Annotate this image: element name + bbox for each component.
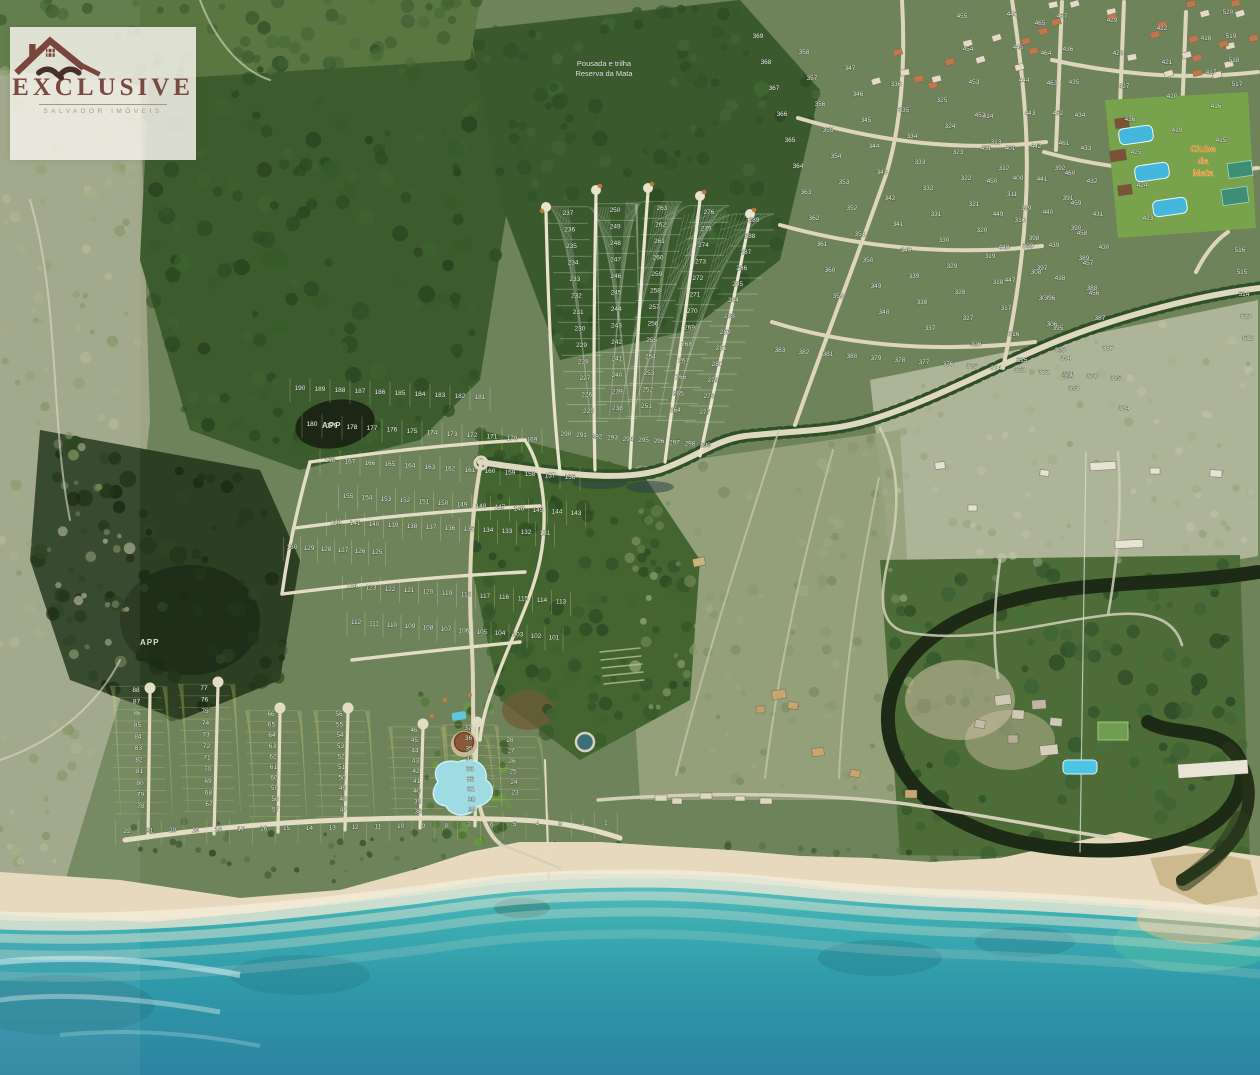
lot-number-label: 294	[623, 436, 634, 443]
lot-number-label: 17	[237, 826, 245, 833]
lot-number-label: 316	[1009, 331, 1020, 338]
tree-blob	[267, 830, 274, 837]
tree-blob	[730, 645, 740, 655]
lot-number-label: 360	[825, 267, 836, 274]
tree-blob	[579, 556, 592, 569]
tree-blob	[954, 576, 960, 582]
tree-blob	[819, 549, 828, 558]
brand-subtitle: SALVADOR IMÓVEIS	[43, 108, 162, 115]
lot-number-label: 9	[422, 823, 426, 830]
tree-blob	[871, 530, 878, 537]
tree-blob	[549, 645, 557, 653]
clube-da-mata	[1105, 92, 1256, 238]
tree-blob	[392, 278, 402, 288]
tree-blob	[124, 311, 129, 316]
lot-number-label: 20	[169, 827, 177, 834]
tree-blob	[925, 406, 931, 412]
lot-number-label: 518	[1229, 57, 1240, 64]
tree-blob	[970, 523, 975, 528]
tree-blob	[1246, 362, 1251, 367]
tree-blob	[360, 840, 367, 847]
lot-number-label: 334	[907, 133, 918, 140]
tree-blob	[882, 489, 889, 496]
tree-blob	[921, 384, 925, 388]
tree-blob	[588, 85, 604, 101]
tree-blob	[840, 552, 847, 559]
tree-blob	[1168, 357, 1177, 366]
tree-blob	[1065, 773, 1082, 790]
tree-blob	[111, 387, 118, 394]
tree-blob	[1027, 406, 1036, 415]
tree-blob	[165, 336, 181, 352]
tree-blob	[831, 533, 839, 541]
lot-number-label: 102	[531, 633, 542, 640]
tree-blob	[45, 5, 59, 19]
tree-blob	[272, 378, 279, 385]
tree-blob	[648, 134, 659, 145]
tree-blob	[226, 177, 241, 192]
tree-blob	[415, 416, 421, 422]
tree-blob	[198, 342, 210, 354]
tree-blob	[1199, 699, 1212, 712]
building	[905, 790, 917, 798]
lot-number-label: 13	[329, 824, 337, 831]
tree-blob	[1187, 432, 1197, 442]
tree-blob	[337, 838, 344, 845]
tree-blob	[260, 657, 272, 669]
tree-blob	[300, 53, 310, 63]
tree-blob	[732, 103, 738, 109]
tree-blob	[325, 9, 338, 22]
tree-blob	[724, 843, 731, 850]
tree-blob	[779, 783, 784, 788]
lot-number-label: 230	[574, 326, 585, 333]
lot-number-label: 86	[133, 710, 141, 717]
tree-blob	[1014, 511, 1022, 519]
tree-blob	[432, 820, 440, 828]
pond-roundabout	[576, 733, 594, 751]
lot-number-label: 242	[611, 339, 622, 346]
tree-blob	[236, 518, 245, 527]
tree-blob	[770, 216, 783, 229]
lot-number-label: 519	[1226, 33, 1237, 40]
lot-number-label: 415	[1216, 137, 1227, 144]
lot-number-label: 125	[372, 549, 383, 556]
lot-number-label: 318	[993, 279, 1004, 286]
tree-blob	[39, 318, 43, 322]
tree-blob	[637, 545, 645, 553]
lot-number-label: 6	[490, 822, 494, 829]
lot-number-label: 171	[487, 434, 498, 441]
tree-blob	[257, 21, 270, 34]
tree-blob	[75, 511, 80, 516]
tree-blob	[1029, 426, 1036, 433]
lot-number-label: 376	[943, 361, 954, 368]
tree-blob	[653, 149, 668, 164]
tree-blob	[330, 860, 336, 866]
lot-number-label: 177	[367, 425, 378, 432]
tree-blob	[549, 83, 558, 92]
building	[1210, 470, 1222, 478]
lot-number-label: 436	[1063, 46, 1074, 53]
tree-blob	[1210, 510, 1218, 518]
tree-blob	[1135, 743, 1151, 759]
lot-number-label: 310	[1015, 217, 1026, 224]
lot-number-label: 514	[1239, 291, 1250, 298]
lot-number-label: 432	[1087, 178, 1098, 185]
lot-number-label: 341	[893, 221, 904, 228]
lot-number-label: 176	[387, 427, 398, 434]
lot-number-label: 311	[1007, 191, 1018, 198]
tree-blob	[106, 591, 113, 598]
tree-blob	[52, 472, 62, 482]
tree-blob	[140, 584, 149, 593]
lot-number-label: 322	[961, 175, 972, 182]
tree-blob	[822, 645, 832, 655]
lot-number-label: 113	[556, 598, 567, 605]
tree-blob	[71, 743, 82, 754]
lot-number-label: 325	[937, 97, 948, 104]
lot-number-label: 12	[351, 824, 359, 831]
lot-number-label: 142	[331, 519, 342, 526]
tree-blob	[742, 163, 755, 176]
tree-blob	[1181, 657, 1192, 668]
lot-number-label: 57	[272, 806, 280, 813]
tree-blob	[641, 636, 652, 647]
tree-blob	[515, 643, 531, 659]
lot-number-label: 296	[654, 438, 665, 445]
lot-number-label: 445	[1013, 44, 1024, 51]
tree-blob	[91, 216, 97, 222]
tree-blob	[257, 66, 264, 73]
tree-blob	[606, 557, 619, 570]
tree-blob	[198, 173, 211, 186]
tree-blob	[0, 66, 10, 76]
tree-blob	[867, 441, 874, 448]
club-label-line2: da	[1198, 156, 1209, 166]
tree-blob	[250, 396, 257, 403]
tree-blob	[632, 7, 643, 18]
tree-blob	[82, 3, 93, 14]
tree-blob	[451, 344, 463, 356]
lot-number-label: 76	[201, 697, 209, 704]
lot-number-label: 289	[749, 217, 760, 224]
tree-blob	[46, 607, 59, 620]
tree-blob	[736, 616, 745, 625]
tree-blob	[294, 867, 299, 872]
lot-number-label: 313	[991, 139, 1002, 146]
lot-number-label: 278	[703, 393, 714, 400]
tree-blob	[1065, 666, 1074, 675]
tree-blob	[611, 676, 617, 682]
lot-number-label: 54	[336, 732, 344, 739]
lot-number-label: 422	[1157, 25, 1168, 32]
tree-blob	[655, 566, 662, 573]
tree-blob	[1193, 485, 1201, 493]
lot-number-label: 387	[1095, 315, 1106, 322]
tree-blob	[828, 441, 835, 448]
tree-blob	[24, 603, 35, 614]
lot-number-label: 441	[1037, 176, 1048, 183]
tree-blob	[1028, 639, 1035, 646]
lot-number-label: 424	[1137, 182, 1148, 189]
tree-blob	[516, 453, 524, 461]
tree-blob	[264, 871, 271, 878]
tree-blob	[139, 537, 156, 554]
tree-blob	[9, 637, 19, 647]
lot-number-label: 365	[785, 137, 796, 144]
tree-blob	[736, 777, 744, 785]
tree-blob	[551, 140, 565, 154]
lot-number-label: 260	[653, 255, 664, 262]
tree-blob	[174, 255, 191, 272]
lot-number-label: 348	[879, 309, 890, 316]
tree-blob	[495, 167, 504, 176]
tree-blob	[329, 328, 336, 335]
tree-blob	[245, 11, 259, 25]
lot-number-label: 276	[704, 209, 715, 216]
lot-number-label: 338	[917, 299, 928, 306]
tree-blob	[742, 50, 749, 57]
lot-number-label: 175	[407, 428, 418, 435]
tree-blob	[737, 134, 744, 141]
tree-blob	[240, 36, 251, 47]
tree-blob	[227, 861, 232, 866]
tree-blob	[1046, 569, 1060, 583]
tree-blob	[1162, 648, 1176, 662]
tree-blob	[637, 553, 647, 563]
tree-blob	[290, 279, 298, 287]
tree-blob	[906, 849, 912, 855]
logo-divider	[39, 104, 167, 105]
tree-blob	[280, 421, 290, 431]
tree-blob	[1212, 706, 1224, 718]
lot-number-label: 166	[365, 460, 376, 467]
lot-number-label: 231	[573, 309, 584, 316]
tree-blob	[1127, 487, 1132, 492]
lot-number-label: 158	[525, 471, 536, 478]
tree-blob	[561, 123, 568, 130]
tree-blob	[503, 43, 519, 59]
tree-blob	[997, 553, 1007, 563]
lot-number-label: 267	[678, 358, 689, 365]
lot-number-label: 70	[204, 766, 212, 773]
tree-blob	[82, 245, 91, 254]
tree-blob	[15, 495, 21, 501]
tree-blob	[58, 526, 68, 536]
lot-number-label: 246	[610, 273, 621, 280]
lot-number-label: 83	[135, 745, 143, 752]
tree-blob	[934, 769, 944, 779]
tree-blob	[312, 162, 322, 172]
tree-blob	[674, 150, 681, 157]
tree-blob	[847, 442, 858, 453]
tree-blob	[197, 220, 213, 236]
tree-blob	[293, 170, 299, 176]
tree-blob	[1133, 651, 1146, 664]
tree-blob	[614, 21, 624, 31]
tree-blob	[552, 53, 563, 64]
tree-blob	[1227, 336, 1236, 345]
tree-blob	[705, 693, 713, 701]
tree-blob	[1147, 589, 1160, 602]
lot-number-label: 417	[1206, 69, 1217, 76]
lot-number-label: 513	[1241, 313, 1252, 320]
tree-blob	[443, 405, 455, 417]
tree-blob	[663, 688, 671, 696]
lot-number-label: 347	[845, 65, 856, 72]
tree-blob	[694, 624, 698, 628]
lot-number-label: 333	[915, 159, 926, 166]
tree-blob	[66, 492, 80, 506]
lot-number-label: 170	[507, 435, 518, 442]
tree-blob	[108, 452, 121, 465]
building	[1150, 468, 1160, 474]
tree-blob	[632, 537, 641, 546]
lot-number-label: 135	[464, 526, 475, 533]
tree-blob	[948, 518, 957, 527]
lot-number-label: 282	[720, 329, 731, 336]
lot-number-label: 372	[1039, 369, 1050, 376]
tree-blob	[146, 529, 153, 536]
lot-number-label: 145	[533, 507, 544, 514]
tree-blob	[632, 565, 639, 572]
building	[735, 796, 745, 801]
lot-number-label: 108	[423, 625, 434, 632]
tree-blob	[676, 561, 681, 566]
lot-number-label: 418	[1201, 35, 1212, 42]
tree-blob	[1165, 678, 1173, 686]
tree-blob	[932, 486, 939, 493]
lot-number-label: 358	[799, 49, 810, 56]
lot-number-label: 149	[457, 501, 468, 508]
tree-blob	[490, 710, 495, 715]
lot-number-label: 265	[673, 391, 684, 398]
lot-number-label: 130	[287, 544, 298, 551]
tree-blob	[126, 554, 135, 563]
lot-number-label: 275	[701, 226, 712, 233]
tree-blob	[711, 26, 724, 39]
tree-blob	[338, 342, 348, 352]
tree-blob	[73, 291, 80, 298]
resort-tennis-court	[1098, 722, 1128, 740]
lot-number-label: 416	[1211, 103, 1222, 110]
lot-number-label: 45	[411, 737, 419, 744]
tree-blob	[656, 705, 661, 710]
lot-number-label: 458	[1077, 230, 1088, 237]
tree-blob	[441, 854, 446, 859]
tree-blob	[508, 119, 518, 129]
tree-blob	[473, 39, 485, 51]
tree-blob	[201, 556, 208, 563]
tree-blob	[841, 745, 845, 749]
lot-number-label: 244	[611, 306, 622, 313]
lot-number-label: 439	[1049, 242, 1060, 249]
tree-blob	[483, 576, 494, 587]
lot-number-label: 457	[1083, 260, 1094, 267]
tree-blob	[3, 221, 8, 226]
tree-blob	[1077, 401, 1084, 408]
tree-blob	[923, 852, 926, 855]
tree-blob	[888, 568, 893, 573]
lot-number-label: 257	[649, 304, 660, 311]
tree-blob	[219, 3, 226, 10]
tree-blob	[336, 123, 346, 133]
lot-number-label: 323	[953, 149, 964, 156]
lot-number-label: 66	[267, 711, 275, 718]
lot-number-label: 77	[200, 685, 208, 692]
lot-number-label: 30	[468, 796, 476, 803]
tree-blob	[74, 610, 86, 622]
tree-blob	[896, 847, 903, 854]
lot-number-label: 3	[558, 820, 562, 827]
tree-blob	[241, 50, 254, 63]
tree-blob	[1103, 519, 1109, 525]
tree-blob	[81, 528, 87, 534]
building	[994, 694, 1011, 706]
tree-blob	[114, 225, 126, 237]
tree-blob	[644, 516, 653, 525]
tree-blob	[551, 495, 557, 501]
tree-blob	[392, 226, 408, 242]
tree-blob	[45, 336, 49, 340]
tree-blob	[651, 505, 663, 517]
lot-number-label: 426	[1125, 116, 1136, 123]
tree-blob	[1217, 559, 1229, 571]
tree-blob	[684, 575, 696, 587]
lot-number-label: 10	[397, 823, 405, 830]
tree-blob	[646, 595, 652, 601]
tree-blob	[401, 14, 415, 28]
masterplan-aerial-map: 8887868584838281807978777675747372717069…	[0, 0, 1260, 1075]
tree-blob	[123, 219, 130, 226]
lot-number-label: 268	[681, 341, 692, 348]
tree-blob	[195, 847, 201, 853]
lot-number-label: 118	[461, 591, 472, 598]
lot-number-label: 361	[817, 241, 828, 248]
tree-blob	[505, 802, 512, 809]
tree-blob	[623, 168, 632, 177]
lot-number-label: 393	[1069, 385, 1080, 392]
lot-number-label: 352	[847, 205, 858, 212]
lot-number-label: 340	[901, 247, 912, 254]
tree-blob	[191, 549, 201, 559]
tree-blob	[1002, 432, 1009, 439]
tree-blob	[33, 544, 48, 559]
tree-blob	[33, 317, 38, 322]
tree-blob	[601, 596, 608, 603]
lot-number-label: 291	[576, 432, 587, 439]
tree-blob	[817, 575, 829, 587]
tree-blob	[15, 380, 21, 386]
tree-blob	[213, 186, 223, 196]
tree-blob	[105, 602, 111, 608]
lot-number-label: 399	[1021, 205, 1032, 212]
tree-blob	[79, 303, 85, 309]
lot-number-label: 163	[425, 464, 436, 471]
lot-number-label: 460	[1065, 170, 1076, 177]
tree-blob	[378, 169, 392, 183]
tree-blob	[568, 659, 581, 672]
tree-blob	[1221, 520, 1227, 526]
building	[1040, 744, 1059, 756]
lot-number-label: 363	[801, 189, 812, 196]
club-tennis-court	[1221, 186, 1249, 205]
tree-blob	[1055, 364, 1061, 370]
lot-number-label: 312	[999, 165, 1010, 172]
tree-blob	[1029, 369, 1035, 375]
app-pond-label: APP	[322, 421, 341, 430]
